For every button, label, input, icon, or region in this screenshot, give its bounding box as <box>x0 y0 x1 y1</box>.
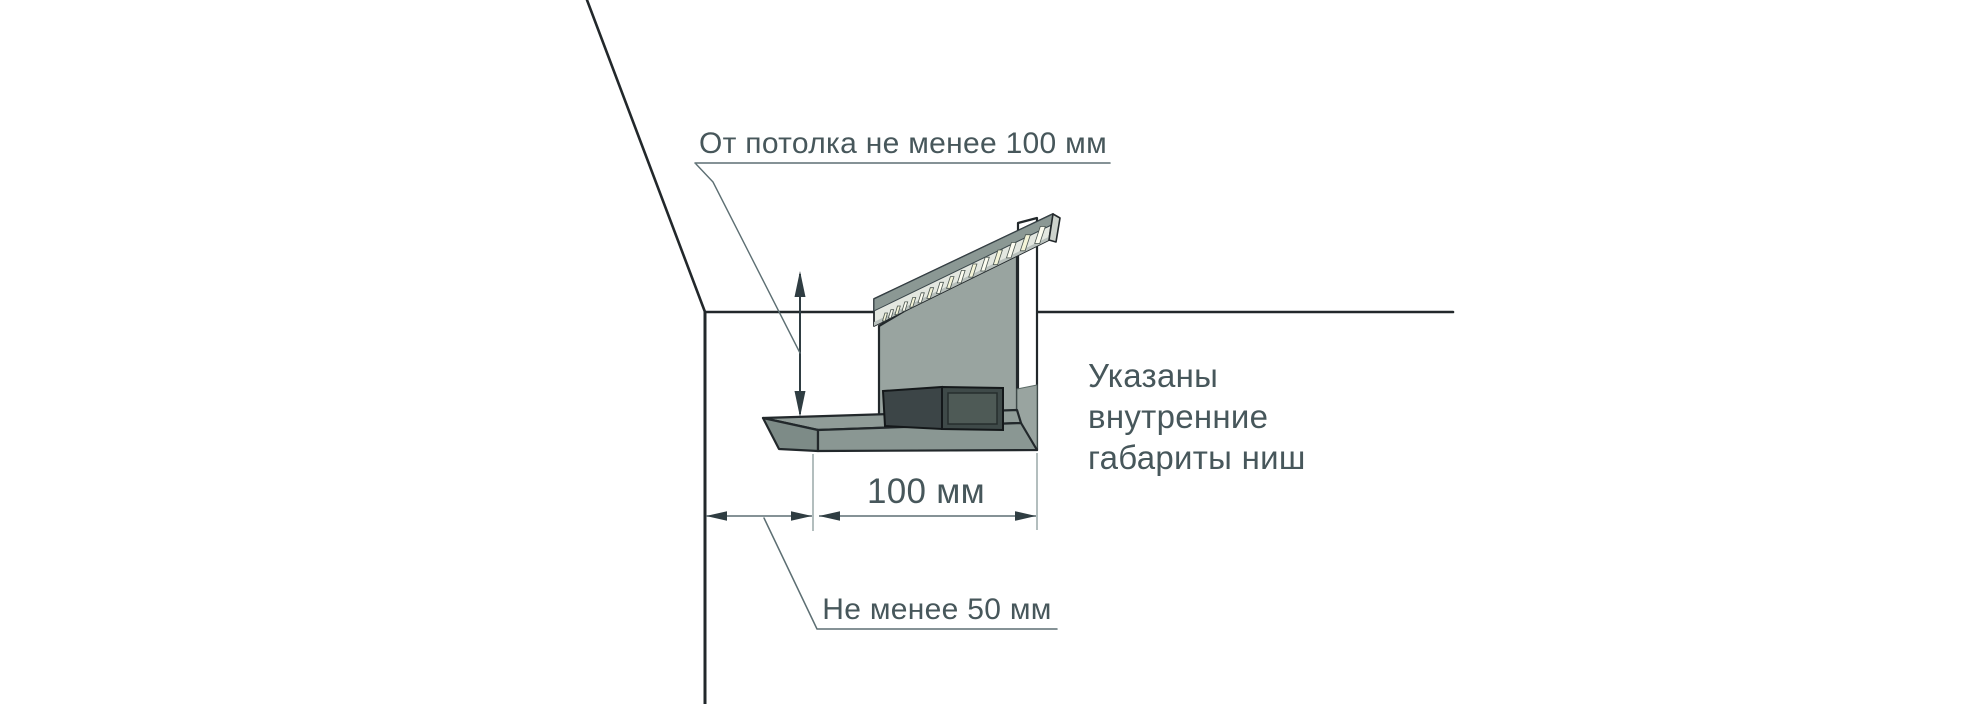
arrow-down-head <box>795 391 806 417</box>
arrow-up-head <box>795 271 806 297</box>
arrow-right-head <box>791 511 812 521</box>
note-inner-dimensions: Указаны внутренние габариты ниш <box>1088 355 1306 478</box>
arrow-left-head <box>819 511 840 521</box>
curtain-box <box>883 387 1003 430</box>
niche-structure <box>763 214 1060 451</box>
label-niche-width: 100 мм <box>826 473 1026 511</box>
niche-installation-diagram: От потолка не менее 100 мм 100 мм Не мен… <box>0 0 1980 704</box>
note-line-1: Указаны <box>1088 355 1306 396</box>
label-ceiling-clearance: От потолка не менее 100 мм <box>696 126 1110 162</box>
note-line-2: внутренние <box>1088 396 1306 437</box>
label-wall-clearance: Не менее 50 мм <box>817 592 1057 628</box>
curtain-box-left-face <box>883 387 942 429</box>
ceiling-label-leader <box>696 164 800 353</box>
room-perspective-line <box>587 0 705 312</box>
arrow-left-head <box>706 511 727 521</box>
curtain-box-inner-panel <box>948 393 997 424</box>
arrow-right-head <box>1015 511 1036 521</box>
note-line-3: габариты ниш <box>1088 437 1306 478</box>
dimension-line-50mm <box>706 511 812 521</box>
dimension-line-100mm <box>819 511 1036 521</box>
